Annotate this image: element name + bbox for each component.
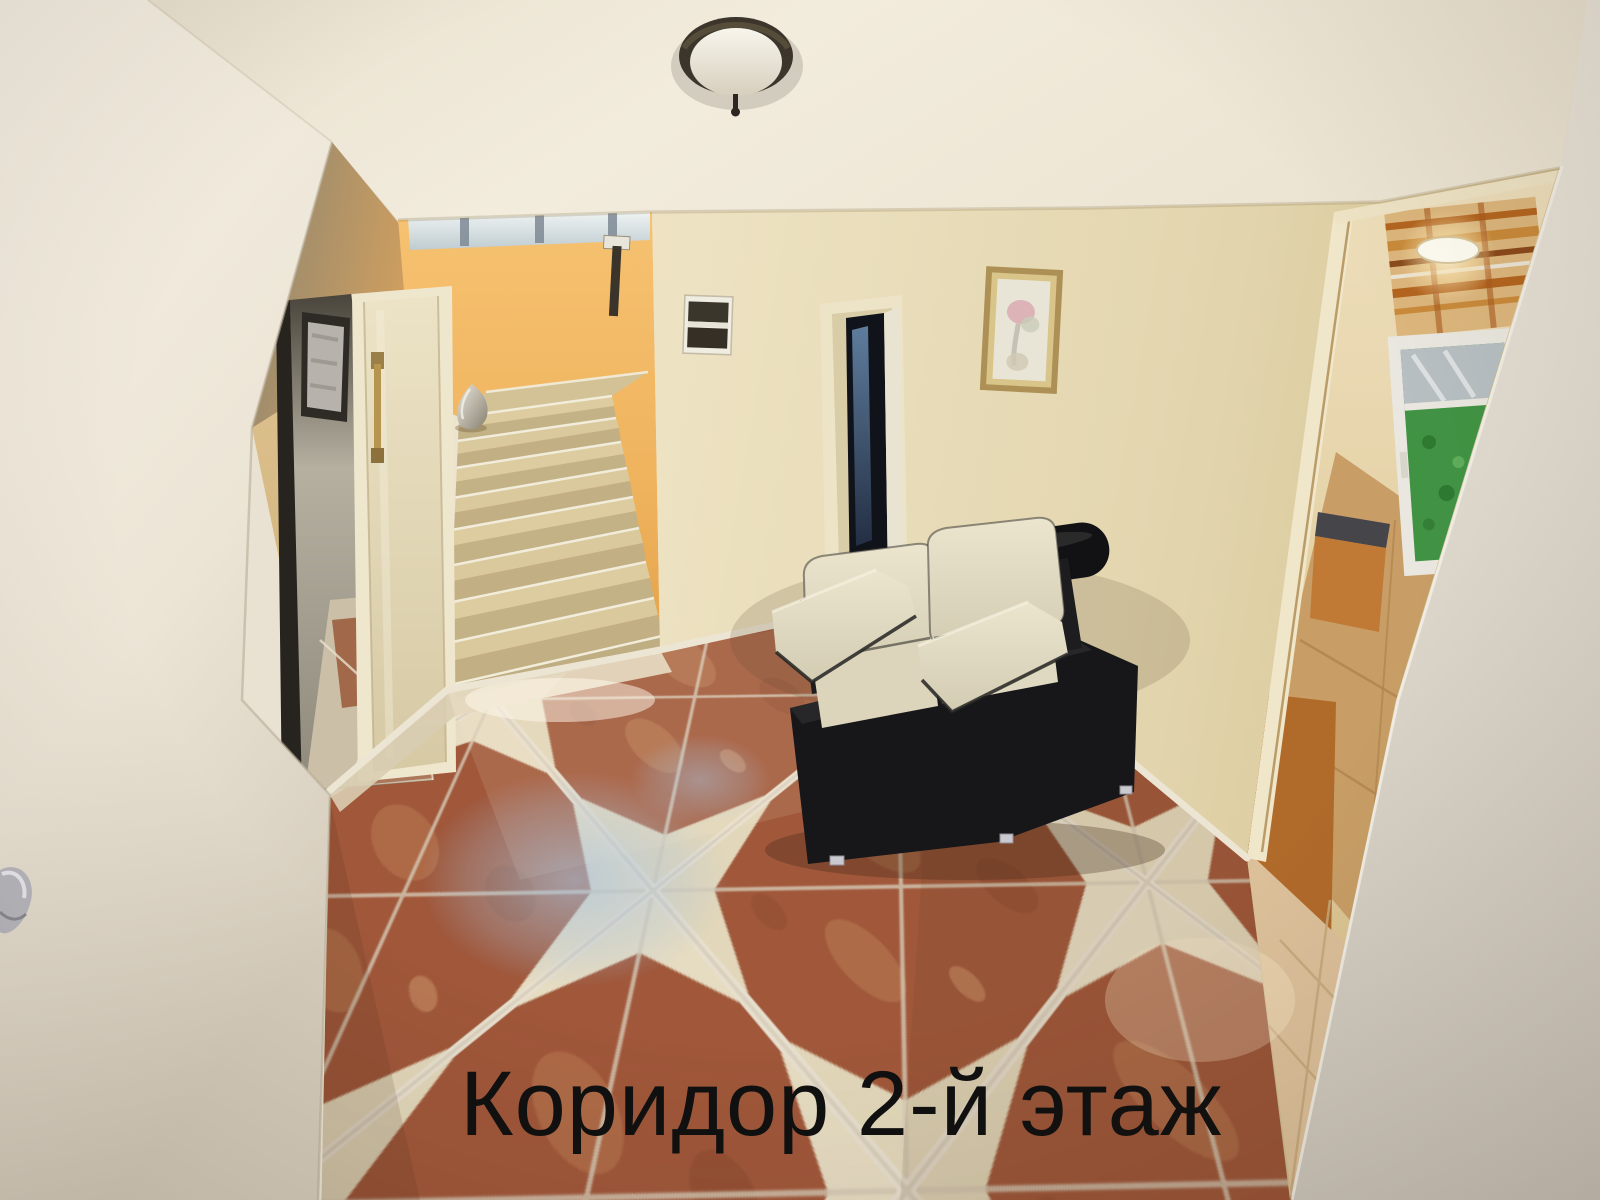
caption-overlay: Коридор 2-й этаж [460, 1052, 1222, 1157]
mirror-reflection-picture [301, 312, 350, 422]
electrical-panel [683, 295, 733, 355]
corridor-photo: Коридор 2-й этаж [0, 0, 1600, 1200]
bathroom-cabinet [1310, 536, 1386, 632]
bathroom-counter [1310, 512, 1390, 632]
wall-painting [980, 266, 1063, 394]
bathroom-lamp [1400, 208, 1496, 304]
